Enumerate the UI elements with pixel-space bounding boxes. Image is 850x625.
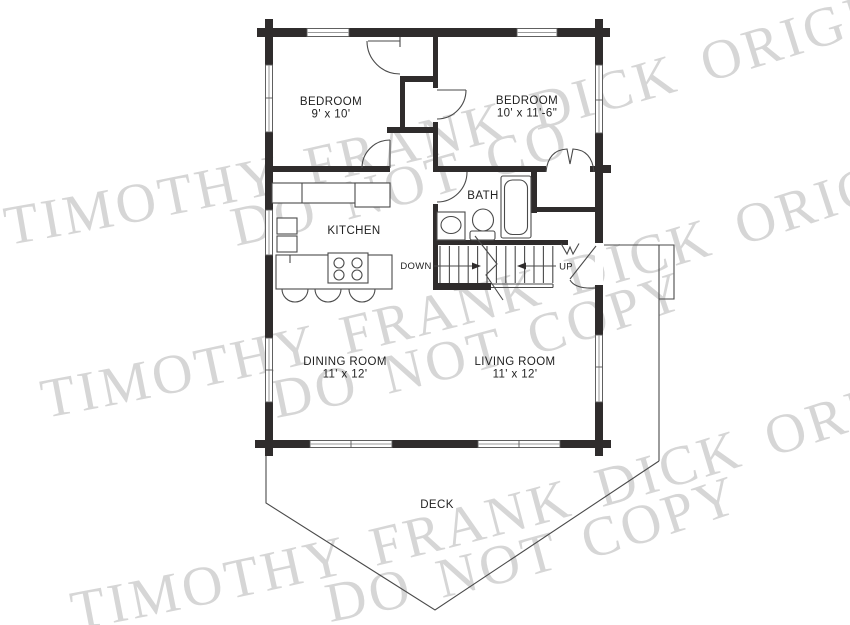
wall-oven	[277, 218, 297, 234]
closet-bottom-wall	[531, 207, 595, 212]
deck-label: DECK	[420, 499, 454, 511]
living-label: LIVING ROOM	[474, 356, 555, 368]
bath-label: BATH	[467, 190, 498, 202]
dining-dims: 11' x 12'	[323, 369, 368, 381]
window-left-kitchen	[266, 210, 273, 255]
kitchen-bedroom-wall	[265, 166, 390, 172]
window-bottom-dining	[310, 441, 392, 448]
bath-bedroom-wall	[433, 166, 546, 172]
bedroom1-dims: 9' x 10'	[312, 109, 351, 121]
bedroom2-dims: 10' x 11'-6"	[497, 108, 557, 120]
stove	[328, 253, 368, 283]
window-right-living	[596, 335, 603, 402]
log-end-top-right	[595, 19, 603, 28]
hall-wall	[400, 76, 438, 82]
log-end-bottom-right	[595, 448, 603, 456]
wall-oven	[277, 236, 297, 252]
log-end-top-left	[265, 19, 273, 28]
stairs-up-label: UP	[559, 262, 573, 273]
bath-stair-wall	[433, 240, 568, 245]
bedroom2-label: BEDROOM	[496, 95, 558, 107]
bath-closet-wall	[531, 172, 537, 213]
kitchen-label: KITCHEN	[327, 225, 380, 237]
window-top-bedroom2	[517, 29, 557, 37]
window-bottom-living	[478, 441, 560, 448]
floor-plan-page: TIMOTHY FRANK DICK ORIGINALS DO NOT COPY…	[0, 0, 850, 625]
log-end-bottom-left	[265, 448, 273, 456]
entry-door-opening	[595, 243, 603, 285]
bath-sink	[441, 217, 461, 234]
bedroom1-label: BEDROOM	[300, 96, 362, 108]
hall-wall	[400, 82, 405, 133]
dining-label: DINING ROOM	[303, 356, 387, 368]
hall-wall	[387, 127, 437, 133]
stairs-down-label: DOWN	[400, 261, 431, 272]
window-left-dining	[266, 338, 273, 402]
window-left-bedroom1	[266, 65, 273, 132]
living-dims: 11' x 12'	[493, 369, 538, 381]
log-end-right-mid	[603, 165, 611, 173]
refrigerator	[355, 183, 390, 207]
toilet-bowl	[473, 209, 494, 231]
toilet-tank	[470, 231, 495, 240]
floor-plan-drawing: TIMOTHY FRANK DICK ORIGINALS DO NOT COPY…	[0, 0, 850, 625]
window-right-bedroom2	[596, 65, 603, 133]
stair-bottom-wall	[433, 283, 491, 290]
window-top-bedroom1	[307, 29, 349, 37]
